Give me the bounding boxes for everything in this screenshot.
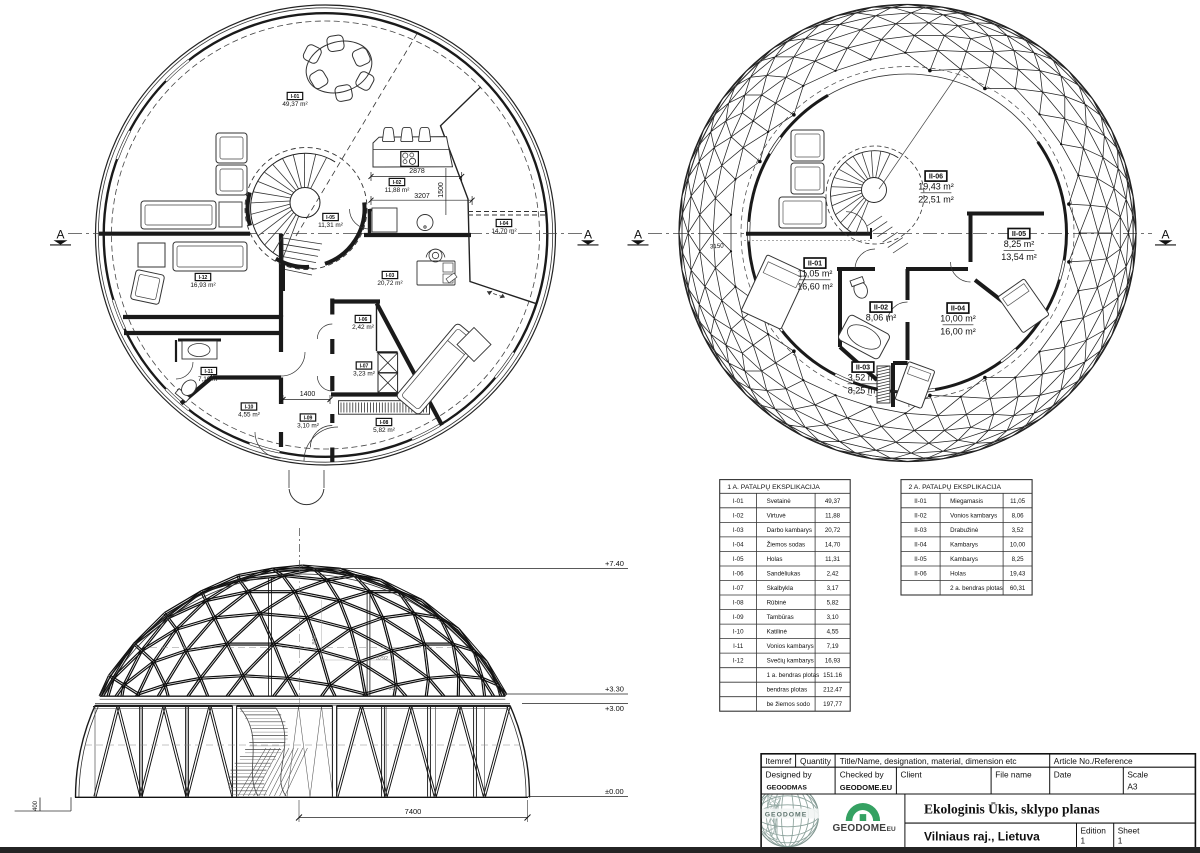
svg-text:8,25 m²: 8,25 m² [1004, 239, 1035, 249]
svg-text:I-01: I-01 [291, 94, 300, 100]
svg-text:GEODOME: GEODOME [765, 812, 808, 819]
svg-text:2,42 m²: 2,42 m² [352, 324, 374, 331]
svg-text:Skalbykla: Skalbykla [767, 585, 794, 592]
svg-text:I-09: I-09 [733, 614, 744, 621]
svg-text:Svečių kambarys: Svečių kambarys [767, 658, 814, 665]
svg-text:11,88 m²: 11,88 m² [385, 187, 410, 194]
svg-text:I-01: I-01 [733, 498, 744, 505]
svg-text:14,70 m²: 14,70 m² [491, 228, 516, 235]
svg-text:Quantity: Quantity [800, 756, 832, 766]
svg-text:A: A [634, 228, 642, 242]
svg-text:11,31 m²: 11,31 m² [318, 222, 343, 229]
svg-text:11,88: 11,88 [825, 512, 841, 519]
svg-text:Sheet: Sheet [1118, 826, 1140, 836]
svg-text:3,52 m²: 3,52 m² [848, 373, 879, 383]
svg-text:II-03: II-03 [856, 364, 870, 372]
svg-text:7,19: 7,19 [827, 643, 840, 650]
svg-text:16,93: 16,93 [825, 658, 841, 665]
svg-text:II-04: II-04 [951, 305, 965, 313]
svg-text:A3: A3 [1127, 782, 1138, 792]
svg-text:11,05 m²: 11,05 m² [798, 269, 833, 279]
svg-text:Edition: Edition [1081, 826, 1107, 836]
svg-text:bendras plotas: bendras plotas [767, 687, 808, 694]
svg-text:3,52: 3,52 [1012, 527, 1025, 534]
svg-text:GEOODMAS: GEOODMAS [767, 785, 808, 792]
svg-text:I-10: I-10 [733, 629, 744, 636]
svg-text:II-06: II-06 [929, 173, 943, 181]
svg-text:I-03: I-03 [386, 273, 395, 279]
svg-text:8,06: 8,06 [1012, 512, 1025, 519]
svg-text:Checked by: Checked by [840, 770, 885, 780]
svg-text:Tambūras: Tambūras [767, 614, 794, 621]
svg-text:I-07: I-07 [733, 585, 744, 592]
svg-text:II-04: II-04 [914, 541, 927, 548]
svg-text:800: 800 [312, 635, 318, 644]
svg-text:I-08: I-08 [733, 600, 744, 607]
svg-text:1 a. bendras plotas: 1 a. bendras plotas [767, 672, 820, 679]
svg-text:16,60 m²: 16,60 m² [797, 281, 833, 291]
svg-text:5,82 m²: 5,82 m² [373, 427, 395, 434]
svg-text:I-11: I-11 [733, 643, 744, 650]
svg-text:Holas: Holas [767, 556, 783, 563]
svg-text:Darbo kambarys: Darbo kambarys [767, 527, 812, 534]
svg-text:10,00 m²: 10,00 m² [940, 314, 976, 324]
svg-text:.EU: .EU [885, 826, 896, 833]
svg-text:I-04: I-04 [733, 541, 744, 548]
svg-text:Virtuvė: Virtuvė [767, 512, 787, 519]
svg-text:1: 1 [1081, 836, 1086, 846]
svg-text:4,55 m²: 4,55 m² [238, 411, 260, 418]
svg-text:197,77: 197,77 [823, 701, 842, 708]
svg-text:I-09: I-09 [304, 415, 313, 421]
svg-text:Ekologinis Ūkis, sklypo planas: Ekologinis Ūkis, sklypo planas [924, 802, 1100, 817]
svg-text:II-01: II-01 [808, 260, 822, 268]
svg-text:Itemref: Itemref [766, 756, 793, 766]
svg-text:II-01: II-01 [914, 498, 927, 505]
svg-text:+3.00: +3.00 [605, 704, 624, 713]
svg-text:3,10 m²: 3,10 m² [297, 422, 319, 429]
svg-text:I-10: I-10 [245, 404, 254, 410]
svg-text:I-06: I-06 [359, 317, 368, 323]
svg-text:File name: File name [995, 770, 1032, 780]
svg-text:2 a. bendras plotas: 2 a. bendras plotas [950, 585, 1003, 592]
svg-text:7,19 m²: 7,19 m² [198, 376, 220, 383]
svg-text:14,70: 14,70 [825, 541, 841, 548]
svg-text:A: A [584, 228, 592, 242]
svg-text:Rūbinė: Rūbinė [767, 600, 787, 607]
svg-text:1: 1 [1118, 836, 1123, 846]
svg-text:±0.00: ±0.00 [605, 787, 624, 796]
svg-text:3150: 3150 [710, 242, 725, 250]
svg-text:I-05: I-05 [326, 215, 335, 221]
svg-text:2878: 2878 [409, 168, 425, 175]
svg-text:11,05: 11,05 [1010, 498, 1026, 505]
svg-text:11,31: 11,31 [825, 556, 841, 563]
svg-text:II-03: II-03 [914, 527, 927, 534]
svg-text:Vonios kambarys: Vonios kambarys [950, 512, 997, 519]
svg-text:22,51 m²: 22,51 m² [918, 194, 954, 204]
svg-text:Žiemos sodas: Žiemos sodas [767, 540, 806, 548]
svg-text:4,55: 4,55 [827, 629, 840, 636]
svg-text:20,72: 20,72 [825, 527, 841, 534]
svg-text:20,72 m²: 20,72 m² [377, 280, 402, 287]
svg-text:400: 400 [33, 800, 39, 811]
svg-text:19,43: 19,43 [1010, 570, 1026, 577]
svg-text:49,37 m²: 49,37 m² [282, 101, 307, 108]
svg-text:Sandėliukas: Sandėliukas [767, 570, 801, 577]
svg-text:I-02: I-02 [393, 180, 402, 186]
svg-text:Drabužinė: Drabužinė [950, 527, 979, 534]
svg-text:I-11: I-11 [205, 369, 214, 375]
svg-text:Svetainė: Svetainė [767, 498, 792, 505]
svg-text:II-05: II-05 [914, 556, 927, 563]
svg-text:19,43 m²: 19,43 m² [918, 182, 954, 192]
svg-text:I-12: I-12 [199, 275, 208, 281]
svg-text:Katilinė: Katilinė [767, 629, 788, 636]
svg-text:Article No./Reference: Article No./Reference [1054, 756, 1133, 766]
svg-text:II-02: II-02 [874, 304, 888, 312]
svg-text:8,06 m²: 8,06 m² [866, 313, 897, 323]
svg-text:Designed by: Designed by [766, 770, 813, 780]
svg-text:be žiemos sodo: be žiemos sodo [767, 701, 811, 708]
svg-text:I-03: I-03 [733, 527, 744, 534]
svg-text:13,54 m²: 13,54 m² [1001, 252, 1037, 262]
svg-text:+7.40: +7.40 [605, 559, 624, 568]
svg-text:Kambarys: Kambarys [950, 541, 978, 548]
svg-text:3292: 3292 [376, 656, 388, 662]
svg-text:2,42: 2,42 [827, 570, 840, 577]
svg-text:49,37: 49,37 [825, 498, 841, 505]
svg-text:I-04: I-04 [500, 221, 509, 227]
svg-text:I-07: I-07 [360, 363, 369, 369]
svg-text:GEODOME.EU: GEODOME.EU [840, 783, 893, 792]
svg-text:II-05: II-05 [1012, 230, 1026, 238]
svg-text:Kambarys: Kambarys [950, 556, 978, 563]
svg-text:3207: 3207 [414, 193, 430, 200]
svg-text:2 A. PATALPŲ EKSPLIKACIJA: 2 A. PATALPŲ EKSPLIKACIJA [909, 484, 1002, 491]
svg-text:600: 600 [388, 686, 397, 692]
svg-text:I-02: I-02 [733, 512, 744, 519]
svg-text:A: A [56, 228, 64, 242]
svg-text:8,25: 8,25 [1012, 556, 1025, 563]
svg-text:3,17: 3,17 [827, 585, 840, 592]
svg-text:212.47: 212.47 [823, 687, 842, 694]
svg-text:1 A. PATALPŲ EKSPLIKACIJA: 1 A. PATALPŲ EKSPLIKACIJA [727, 484, 820, 491]
svg-text:Vonios kambarys: Vonios kambarys [767, 643, 814, 650]
svg-text:Scale: Scale [1127, 770, 1148, 780]
svg-text:7400: 7400 [405, 807, 422, 816]
svg-text:I-05: I-05 [733, 556, 744, 563]
svg-text:II-02: II-02 [914, 512, 927, 519]
svg-text:I-06: I-06 [733, 570, 744, 577]
svg-text:A: A [1161, 228, 1169, 242]
svg-text:3,23 m²: 3,23 m² [353, 370, 375, 377]
svg-text:Date: Date [1054, 770, 1072, 780]
svg-text:II-06: II-06 [914, 570, 927, 577]
svg-text:3,10: 3,10 [827, 614, 840, 621]
svg-text:1500: 1500 [438, 182, 445, 198]
svg-text:8,25 m²: 8,25 m² [848, 385, 879, 395]
svg-text:Client: Client [901, 770, 923, 780]
svg-text:Vilniaus raj., Lietuva: Vilniaus raj., Lietuva [924, 830, 1040, 844]
svg-text:Miegamasis: Miegamasis [950, 498, 983, 505]
svg-text:60,31: 60,31 [1010, 585, 1026, 592]
svg-text:+3.30: +3.30 [605, 685, 624, 694]
svg-text:GEODOME: GEODOME [833, 823, 887, 834]
svg-text:10,00: 10,00 [1010, 541, 1026, 548]
svg-text:5,82: 5,82 [827, 600, 840, 607]
svg-text:Title/Name, designation, mater: Title/Name, designation, material, dimen… [840, 756, 1017, 766]
svg-text:1400: 1400 [300, 391, 316, 398]
svg-text:16,93 m²: 16,93 m² [190, 282, 215, 289]
svg-text:Holas: Holas [950, 570, 966, 577]
svg-text:16,00 m²: 16,00 m² [940, 326, 976, 336]
svg-text:I-08: I-08 [380, 420, 389, 426]
svg-text:I-12: I-12 [733, 658, 744, 665]
svg-text:151.16: 151.16 [823, 672, 842, 679]
